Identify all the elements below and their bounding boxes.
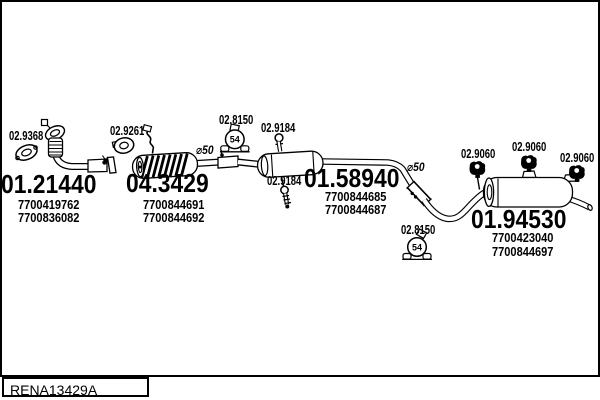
centre-muffler-part-number: 7700844687 xyxy=(325,203,386,216)
drawing-code-label: RENA13429A xyxy=(10,382,97,398)
oxygen-sensor-icon xyxy=(143,125,154,154)
rubber-mount-2-code[interactable]: 02.9060 xyxy=(512,140,546,153)
cat-gasket-icon xyxy=(112,136,135,155)
pipe-diameter-mid-label: ⌀50 xyxy=(196,144,213,156)
catalyst-code[interactable]: 04.3429 xyxy=(126,170,209,196)
pipe-diameter-rear-label: ⌀50 xyxy=(407,161,424,173)
drawing-code-box: RENA13429A xyxy=(2,377,149,397)
clamp-front-size: 54 xyxy=(230,135,240,145)
rear-muffler-body xyxy=(484,171,578,207)
front-pipe-part-number: 7700836082 xyxy=(18,211,79,224)
front-gasket-code[interactable]: 02.9368 xyxy=(9,129,43,142)
exhaust-diagram: 54 54 xyxy=(0,0,600,400)
rear-muffler-code[interactable]: 01.94530 xyxy=(471,206,566,232)
rear-muffler-part-number: 7700844697 xyxy=(492,245,553,258)
cat-gasket-code[interactable]: 02.9261 xyxy=(110,124,144,137)
clamp-rear-code[interactable]: 02.8150 xyxy=(401,223,435,236)
rubber-mount-1-code[interactable]: 02.9060 xyxy=(461,147,495,160)
front-flange-and-flex xyxy=(42,120,67,158)
clamp-front-code[interactable]: 02.8150 xyxy=(219,113,253,126)
rubber-mount-3-code[interactable]: 02.9060 xyxy=(560,151,594,164)
front-gasket-icon xyxy=(14,142,40,163)
clamp-rear-size: 54 xyxy=(412,242,422,252)
front-pipe-code[interactable]: 01.21440 xyxy=(1,171,96,197)
hanger-pin-bottom-code[interactable]: 02.9184 xyxy=(267,174,301,187)
rubber-mount-2-icon xyxy=(521,155,537,172)
hanger-pin-top-icon xyxy=(275,134,283,152)
catalog-diagram-page: 54 54 xyxy=(0,0,600,400)
rubber-mount-1-icon xyxy=(470,161,486,178)
catalyst-part-number: 7700844692 xyxy=(143,211,204,224)
hanger-pin-top-code[interactable]: 02.9184 xyxy=(261,121,295,134)
rear-muffler-part-number: 7700423040 xyxy=(492,231,553,244)
centre-muffler-code[interactable]: 01.58940 xyxy=(304,165,399,191)
clamp-front-icon: 54 xyxy=(220,124,250,152)
